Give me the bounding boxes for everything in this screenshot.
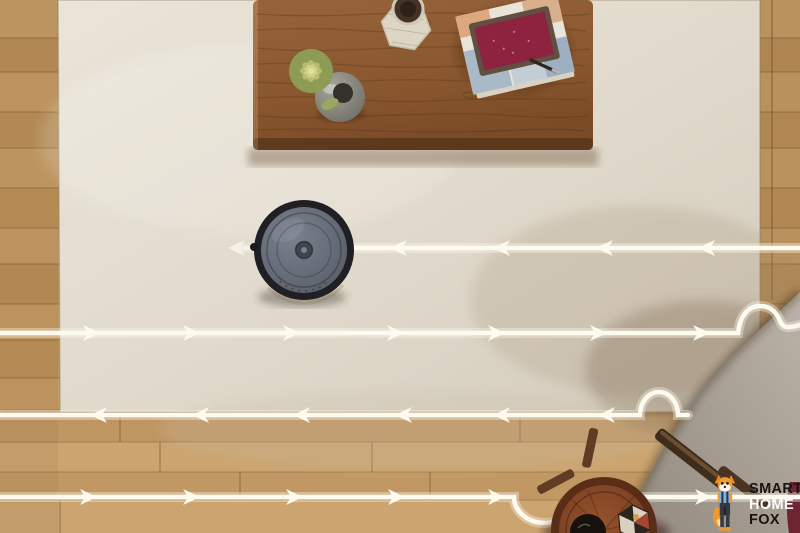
fox-mascot-icon	[712, 474, 744, 532]
logo-text: SMART HOME FOX	[749, 482, 800, 529]
logo-word-smart: SMART	[749, 482, 800, 498]
smart-home-fox-logo: SMART HOME FOX	[712, 474, 800, 532]
succulent-rosette	[289, 49, 333, 93]
scene-illustration	[0, 0, 800, 533]
logo-word-home: HOME	[749, 498, 800, 514]
coffee-table	[248, 0, 598, 166]
logo-word-fox: FOX	[749, 513, 800, 529]
room-photo: SMART HOME FOX	[0, 0, 800, 533]
